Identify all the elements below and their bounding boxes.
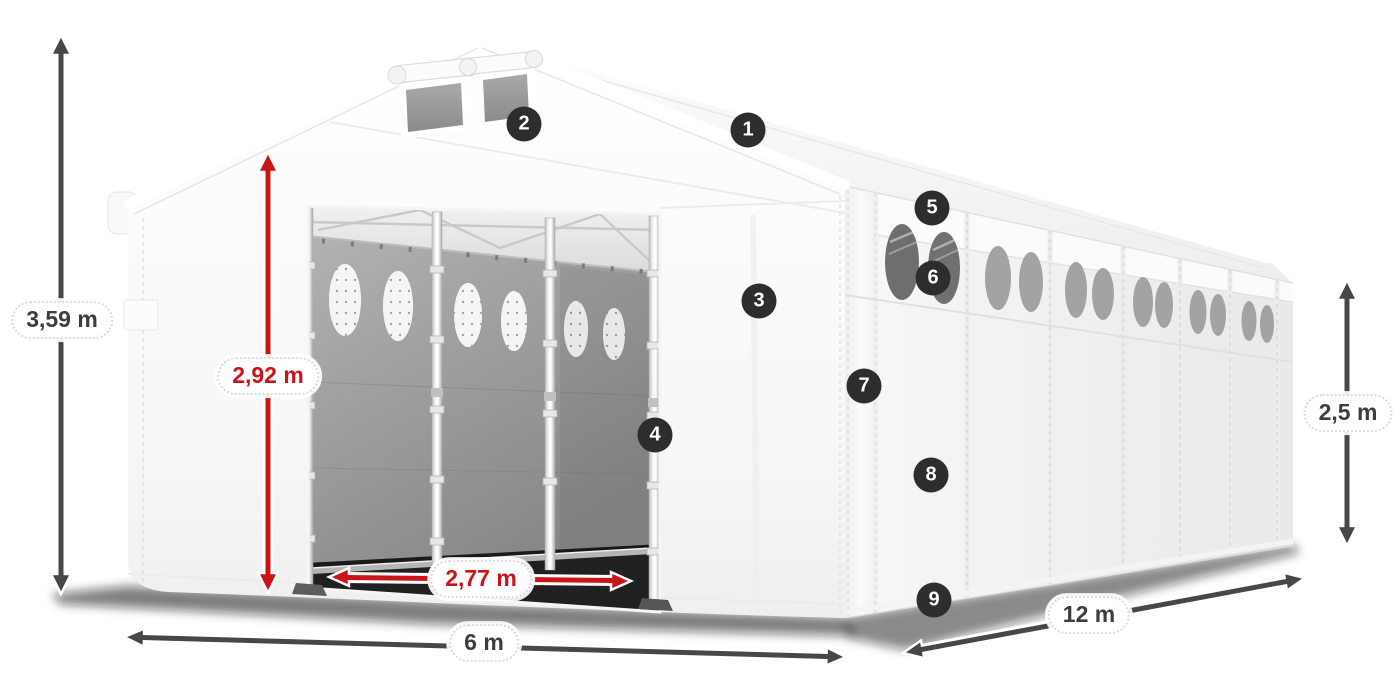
dim-label-total-height: 3,59 m bbox=[11, 301, 113, 339]
callout-3-front-wall: 3 bbox=[742, 284, 777, 319]
dim-label-side-length: 12 m bbox=[1048, 596, 1130, 634]
callout-1-roof: 1 bbox=[731, 113, 766, 148]
callout-5-valance: 5 bbox=[915, 191, 950, 226]
door-opening bbox=[292, 206, 673, 614]
callout-7-corner: 7 bbox=[847, 369, 882, 404]
callout-2-gable-vent: 2 bbox=[507, 107, 542, 142]
dim-label-door-width: 2,77 m bbox=[430, 560, 532, 598]
callout-9-base-rail: 9 bbox=[917, 583, 952, 618]
callout-4-door-frame: 4 bbox=[638, 418, 673, 453]
tent-illustration bbox=[0, 0, 1400, 700]
callout-6-side-vent: 6 bbox=[916, 261, 951, 296]
dim-label-door-height: 2,92 m bbox=[217, 357, 319, 395]
callout-8-side-wall: 8 bbox=[914, 458, 949, 493]
tent-dimensions-diagram: 1 2 3 4 5 6 7 8 9 3,59 m 2,92 m 2,77 m 6… bbox=[0, 0, 1400, 700]
dim-label-front-width: 6 m bbox=[449, 624, 519, 662]
dim-label-side-height: 2,5 m bbox=[1304, 394, 1393, 432]
